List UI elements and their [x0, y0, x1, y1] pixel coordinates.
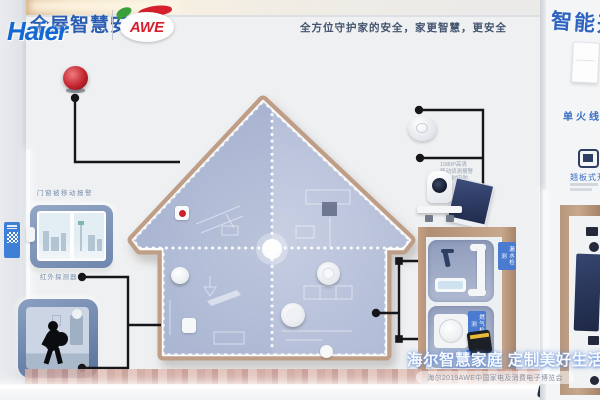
tv-sketch	[322, 202, 337, 216]
pipe-elbow-bottom	[468, 289, 486, 296]
center-hub	[262, 239, 282, 259]
wire-label: 单火线	[563, 108, 600, 123]
camera-lens-icon	[432, 178, 447, 193]
infrared-sensor-device	[171, 267, 189, 284]
shelf-clip	[425, 215, 433, 222]
pipe-vertical	[477, 247, 485, 295]
wall-switch-model	[182, 318, 196, 333]
left-bracket	[82, 277, 128, 368]
floor-led-strip	[0, 385, 545, 389]
round-sensor-ring	[286, 308, 300, 322]
gas-valve-dial	[439, 319, 463, 343]
panel-glyph	[590, 376, 599, 385]
watermark-pill: 海尔2019AWE中国家电及消费电子博览会	[416, 371, 574, 384]
camera-shelf	[417, 206, 462, 213]
door-sensor-label: 门窗被移动报警	[37, 187, 93, 197]
exhibition-photo: 全屋智慧安防 Haier AWE 全方位守护家的安全，家更智慧，更安全	[0, 0, 600, 400]
panel-glyph	[589, 242, 599, 252]
infrared-label: 红外探测器	[40, 271, 78, 281]
smoke-sensor-ring	[322, 267, 335, 280]
watermark-main: 海尔智慧家庭 定制美好生活	[407, 348, 600, 370]
panel-glyph	[586, 227, 598, 236]
switch-type-subtext	[570, 183, 598, 186]
mini-sensor-model	[320, 345, 333, 358]
watermark-sub: 海尔2019AWE中国家电及消费电子博览会	[427, 373, 563, 383]
smoke-detector-ring	[416, 123, 428, 133]
switch-type-label: 翘板式开关	[570, 172, 600, 183]
alarm-indicator-light	[179, 210, 186, 217]
control-panel-screen	[574, 254, 600, 332]
rocker-switch-icon-fill	[583, 154, 593, 162]
shelf-clip	[446, 215, 454, 222]
alarm-line	[75, 98, 180, 162]
switch-type-subtext	[570, 188, 592, 191]
leak-tag: 漏水检测	[498, 242, 516, 270]
panel-glyph	[588, 336, 599, 345]
water	[438, 281, 463, 289]
wall-switch-product	[571, 41, 600, 83]
